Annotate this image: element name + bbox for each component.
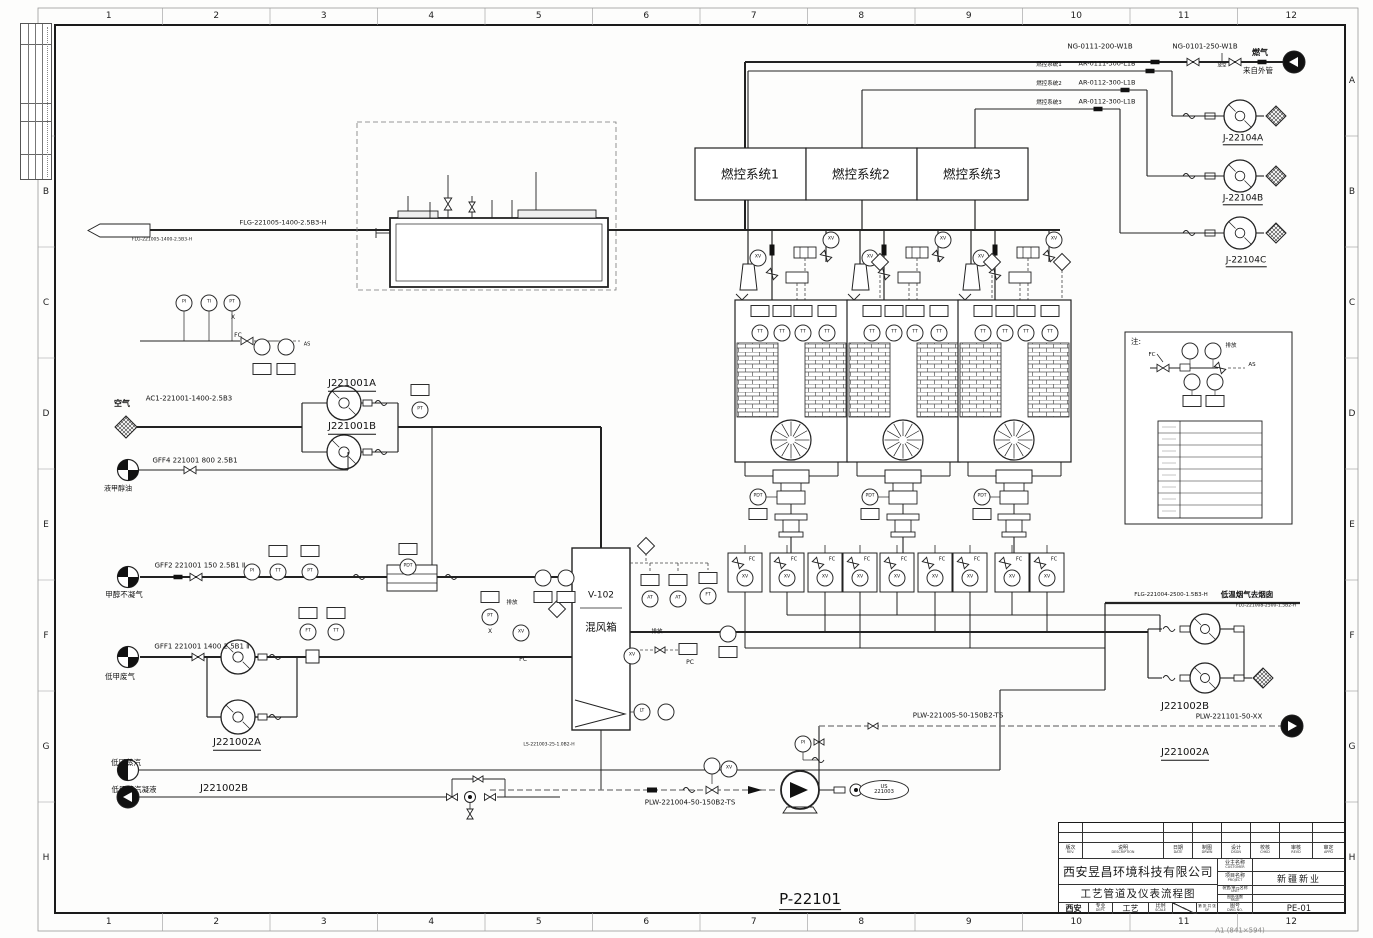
scale-label: 比例 SCALE bbox=[1149, 903, 1173, 914]
title-block: 版次REV.说明DESCRIPTION日期DATE制图DRWN设计DSGN校核C… bbox=[1058, 822, 1345, 913]
revision-empty-cell bbox=[1059, 833, 1083, 843]
piping-group bbox=[38, 8, 1358, 931]
dept-label: 专业 DEPT. bbox=[1089, 903, 1113, 914]
revision-empty-cell bbox=[1280, 823, 1313, 833]
drawing-sheet: 112233445566778899101011111212AABBCCDDEE… bbox=[0, 0, 1373, 938]
scale-value bbox=[1173, 903, 1197, 914]
of-label: 第 张 共 张 OF bbox=[1197, 903, 1218, 914]
unit-label: 装置/单元名称 UNIT bbox=[1218, 886, 1253, 895]
drawing-title: 工艺管道及仪表流程图 bbox=[1081, 886, 1196, 901]
revision-empty-cell bbox=[1164, 833, 1193, 843]
revision-strip bbox=[20, 23, 52, 180]
revision-header-cell: 版次REV. bbox=[1059, 843, 1083, 859]
page-label: 图纸张数 PAGE bbox=[1218, 895, 1253, 903]
customer-value bbox=[1253, 859, 1345, 872]
revision-empty-cell bbox=[1222, 823, 1251, 833]
dwgno-value: PE-01 bbox=[1253, 903, 1345, 914]
revision-empty-cell bbox=[1251, 833, 1280, 843]
pid-linework bbox=[0, 0, 1373, 938]
revision-header-cell: 制图DRWN bbox=[1193, 843, 1222, 859]
titleblock-drawing-title: 工艺管道及仪表流程图 bbox=[1059, 885, 1218, 903]
revision-empty-cell bbox=[1083, 823, 1164, 833]
titleblock-company: 西安昱昌环境科技有限公司 bbox=[1059, 859, 1218, 885]
unit-value bbox=[1253, 886, 1345, 895]
dept-value: 工艺 bbox=[1113, 903, 1149, 914]
revision-empty-cell bbox=[1083, 833, 1164, 843]
revision-header-cell: 日期DATE bbox=[1164, 843, 1193, 859]
revision-header-cell: 设计DSGN bbox=[1222, 843, 1251, 859]
revision-header-cell: 审核REVD bbox=[1280, 843, 1313, 859]
revision-header-cell: 说明DESCRIPTION bbox=[1083, 843, 1164, 859]
customer-label: 业主名称 CUSTOMER bbox=[1218, 859, 1253, 872]
revision-header-cell: 审定APPD bbox=[1313, 843, 1344, 859]
company-name: 西安昱昌环境科技有限公司 bbox=[1063, 863, 1213, 880]
revision-empty-cell bbox=[1222, 833, 1251, 843]
revision-header-row: 版次REV.说明DESCRIPTION日期DATE制图DRWN设计DSGN校核C… bbox=[1059, 823, 1344, 859]
revision-empty-cell bbox=[1193, 823, 1222, 833]
revision-empty-cell bbox=[1313, 833, 1344, 843]
revision-empty-cell bbox=[1164, 823, 1193, 833]
revision-empty-cell bbox=[1193, 833, 1222, 843]
dwgno-label: 图号 DWG NO. bbox=[1218, 903, 1253, 914]
project-label: 项目名称 PROJECT bbox=[1218, 872, 1253, 886]
page-value bbox=[1253, 895, 1345, 903]
revision-header-cell: 校核CHKD bbox=[1251, 843, 1280, 859]
revision-empty-cell bbox=[1059, 823, 1083, 833]
revision-empty-cell bbox=[1280, 833, 1313, 843]
city-cell: 西安 bbox=[1059, 903, 1089, 914]
revision-empty-cell bbox=[1251, 823, 1280, 833]
project-value: 新疆新业 bbox=[1253, 872, 1345, 886]
revision-empty-cell bbox=[1313, 823, 1344, 833]
